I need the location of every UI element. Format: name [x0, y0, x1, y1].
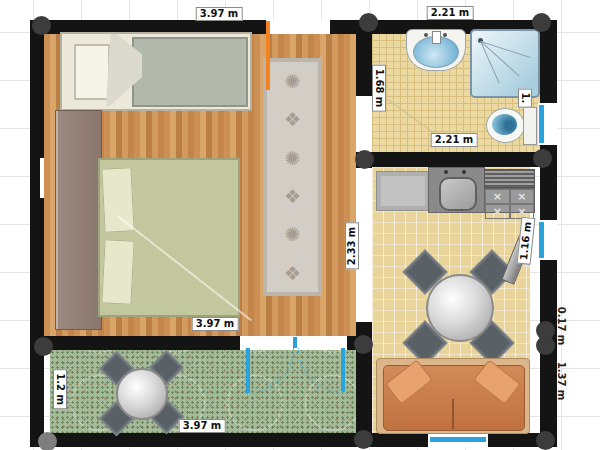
- wall-joint[interactable]: [359, 13, 378, 32]
- rug[interactable]: ✺ ❖ ✺ ❖ ✺ ❖: [263, 58, 322, 296]
- faucet-knob-icon: [424, 33, 428, 37]
- dimension-label: 3.97 m: [192, 317, 239, 331]
- dimension-label: 2.21 m: [431, 133, 478, 147]
- dimension-label: 1.68 m: [372, 65, 386, 112]
- toilet[interactable]: [486, 107, 536, 143]
- stove-cooktop[interactable]: × × × ×: [484, 188, 535, 213]
- wall-joint[interactable]: [536, 431, 555, 450]
- dimension-label: 1.2 m: [53, 369, 67, 409]
- floor-plan-canvas: ✺ ❖ ✺ ❖ ✺ ❖ × × × ×: [0, 0, 600, 450]
- wall-joint[interactable]: [32, 16, 51, 35]
- kitchen-vent-grill[interactable]: [484, 169, 535, 188]
- dimension-label: 1.37 m: [555, 359, 567, 404]
- sofa-seat-split: [452, 399, 454, 429]
- burner-icon: ×: [485, 204, 510, 219]
- kitchen-sink-basin: [439, 177, 477, 211]
- dimension-label: 0.17 m: [555, 304, 567, 349]
- single-bed[interactable]: [60, 32, 252, 111]
- rug-ornament-pattern: ✺ ❖ ✺ ❖ ✺ ❖: [267, 62, 318, 292]
- single-bed-pillow: [74, 44, 110, 100]
- bedroom-entry-door[interactable]: [266, 21, 270, 90]
- faucet-knob-icon: [443, 33, 447, 37]
- dimension-label: 1.: [518, 89, 532, 108]
- bathroom-door-opening: [356, 96, 372, 152]
- toilet-water: [492, 114, 517, 135]
- double-bed[interactable]: [98, 158, 240, 317]
- wall-joint[interactable]: [34, 337, 53, 356]
- rug-ornament-icon: ❖: [284, 185, 301, 207]
- dimension-label: 2.33 m: [345, 223, 359, 270]
- living-window[interactable]: [430, 437, 486, 442]
- bathroom-bottom-wall[interactable]: [356, 152, 557, 167]
- patio-door-center-post: [293, 337, 297, 348]
- patio-table[interactable]: [116, 368, 168, 420]
- faucet-icon: [432, 31, 441, 44]
- wall-joint[interactable]: [536, 336, 555, 355]
- single-bed-mattress: [132, 37, 248, 107]
- rug-ornament-icon: ✺: [285, 70, 301, 92]
- bedroom-top-door-opening: [266, 20, 330, 34]
- bathroom-sink[interactable]: [406, 29, 466, 71]
- rug-ornament-icon: ❖: [284, 108, 301, 130]
- dining-table[interactable]: [426, 274, 494, 342]
- dimension-label: 3.97 m: [196, 7, 243, 21]
- double-bed-pillow: [101, 167, 134, 232]
- kitchen-window[interactable]: [539, 222, 544, 258]
- rug-ornament-icon: ✺: [285, 223, 301, 245]
- toilet-tank: [523, 107, 537, 145]
- dimension-label: 3.97 m: [179, 419, 226, 433]
- dimension-label: 2.21 m: [427, 6, 474, 20]
- faucet-knob-icon: [462, 170, 466, 174]
- wall-joint[interactable]: [354, 335, 373, 354]
- kitchen-cabinet[interactable]: [376, 171, 430, 211]
- bathroom-window[interactable]: [539, 105, 544, 143]
- left-wall[interactable]: [30, 20, 44, 447]
- double-bed-blanket-fold: [117, 215, 252, 321]
- burner-icon: ×: [485, 189, 510, 204]
- wall-joint[interactable]: [38, 432, 57, 450]
- faucet-knob-icon: [444, 170, 448, 174]
- kitchen-sink-unit[interactable]: [428, 167, 485, 213]
- wall-joint[interactable]: [533, 149, 552, 168]
- rug-ornament-icon: ✺: [285, 147, 301, 169]
- double-bed-pillow: [101, 239, 134, 304]
- wall-joint[interactable]: [354, 430, 373, 449]
- wall-joint[interactable]: [532, 13, 551, 32]
- bedroom-bottom-wall-left[interactable]: [30, 336, 240, 350]
- wall-joint[interactable]: [355, 150, 374, 169]
- sofa[interactable]: [376, 358, 530, 434]
- patio-door-right-leaf[interactable]: [341, 348, 345, 391]
- patio-door-left-leaf[interactable]: [246, 348, 250, 393]
- wardrobe[interactable]: [55, 110, 102, 330]
- stove-burners: × × × ×: [485, 189, 534, 212]
- burner-icon: ×: [510, 189, 535, 204]
- left-wall-mark: [40, 158, 44, 198]
- rug-ornament-icon: ❖: [284, 262, 301, 284]
